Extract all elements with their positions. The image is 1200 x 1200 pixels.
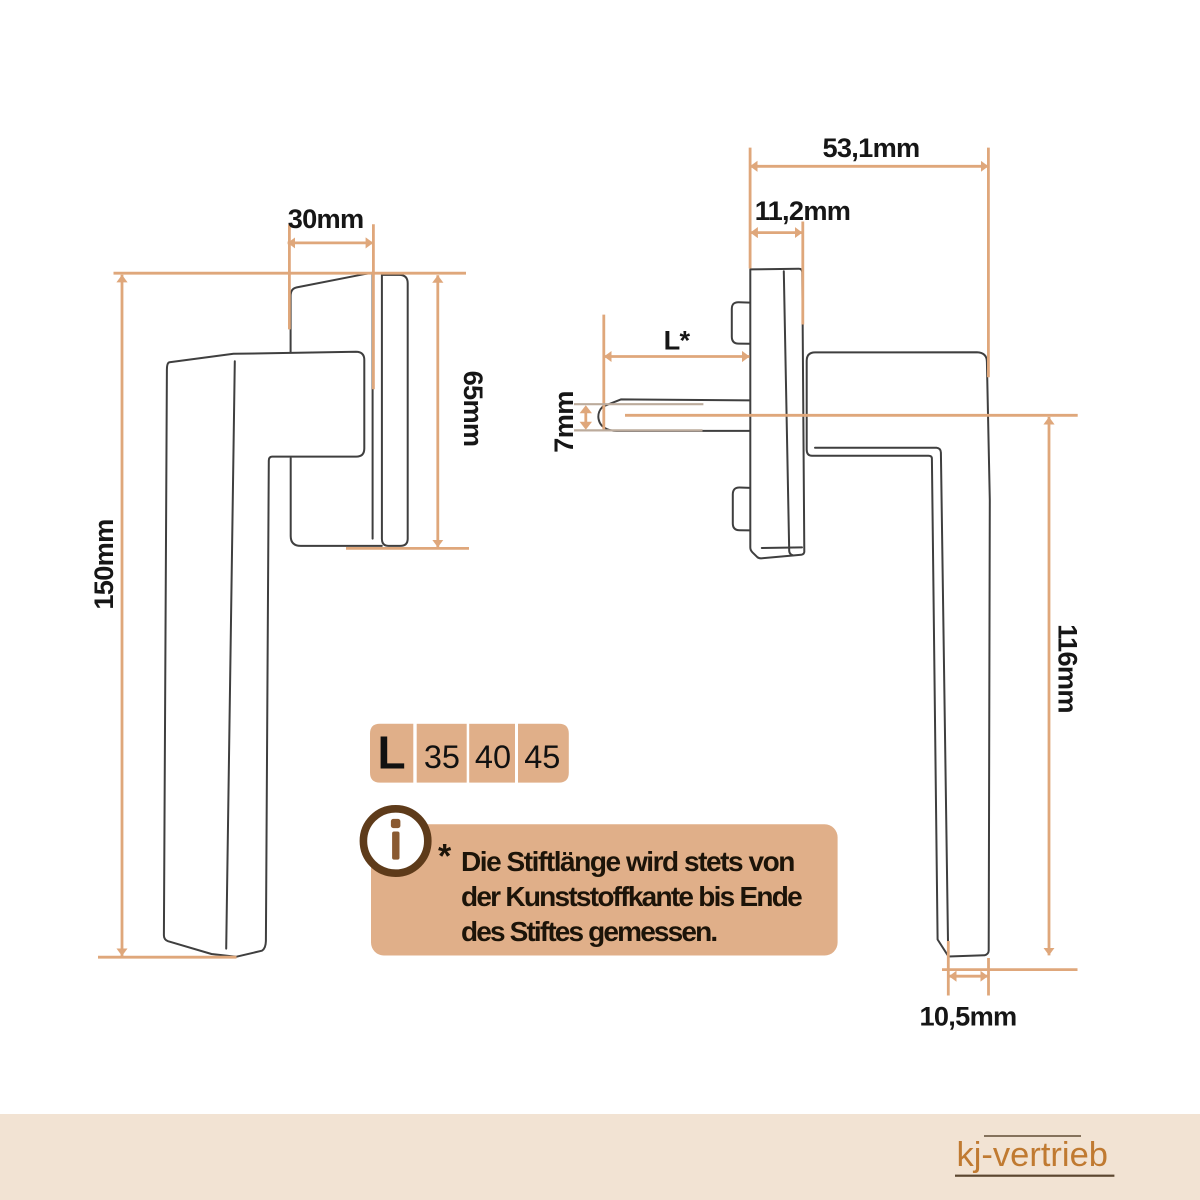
- svg-text:35: 35: [424, 739, 460, 775]
- svg-text:L: L: [378, 727, 406, 779]
- svg-text:des Stiftes gemessen.: des Stiftes gemessen.: [461, 916, 716, 947]
- svg-text:30mm: 30mm: [288, 203, 364, 234]
- svg-text:53,1mm: 53,1mm: [822, 132, 919, 163]
- svg-text:116mm: 116mm: [1053, 624, 1084, 713]
- svg-text:7mm: 7mm: [548, 391, 579, 452]
- svg-text:der Kunststoffkante bis Ende: der Kunststoffkante bis Ende: [461, 881, 802, 912]
- svg-text:40: 40: [475, 739, 511, 775]
- svg-text:11,2mm: 11,2mm: [755, 195, 851, 226]
- svg-text:Die Stiftlänge wird stets von: Die Stiftlänge wird stets von: [461, 846, 794, 877]
- svg-text:*: *: [438, 838, 452, 876]
- svg-text:kj-vertrieb: kj-vertrieb: [957, 1136, 1108, 1174]
- svg-text:150mm: 150mm: [88, 519, 119, 609]
- svg-text:45: 45: [524, 739, 560, 775]
- svg-text:65mm: 65mm: [458, 371, 489, 447]
- svg-text:L*: L*: [664, 324, 691, 355]
- svg-text:10,5mm: 10,5mm: [919, 1001, 1016, 1032]
